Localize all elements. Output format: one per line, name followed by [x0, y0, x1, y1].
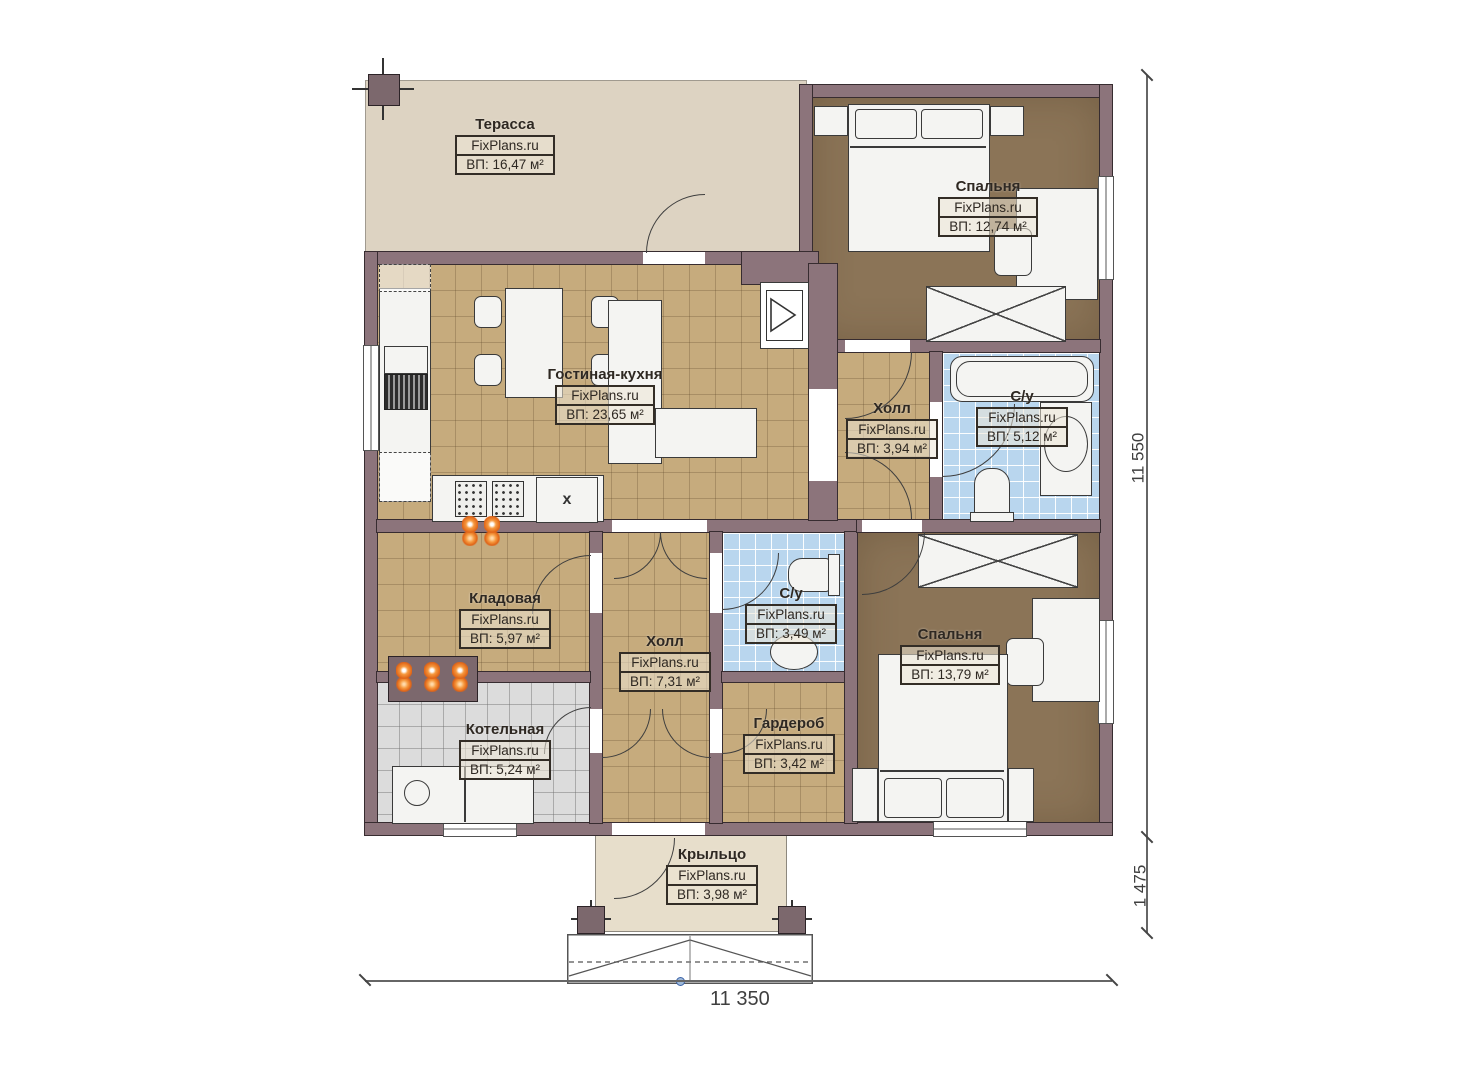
room-area-text: ВП: 3,94 м²: [848, 438, 936, 457]
dimension-line-right: [1146, 75, 1148, 933]
room-area-text: ВП: 5,24 м²: [461, 759, 549, 778]
wall-left: [365, 252, 377, 835]
watermark-text: FixPlans.ru: [902, 647, 998, 664]
wall-top-wing: [800, 85, 1112, 97]
heater-icon-2: [424, 662, 440, 692]
watermark-text: FixPlans.ru: [461, 742, 549, 759]
room-area-text: ВП: 3,42 м²: [745, 753, 833, 772]
vent-shaft-triangle-icon: [766, 290, 803, 341]
watermark-text: FixPlans.ru: [978, 409, 1066, 426]
pillow-icon-2: [921, 109, 983, 139]
hall-lower-top-opening: [612, 520, 707, 532]
room-title: Холл: [873, 400, 911, 417]
room-title: С/у: [779, 585, 802, 602]
watermark-text: FixPlans.ru: [461, 611, 549, 628]
room-label-hall-upper: Холл FixPlans.ru ВП: 3,94 м²: [817, 400, 967, 459]
watermark-text: FixPlans.ru: [745, 736, 833, 753]
bedroom-bottom-window-2: [933, 821, 1027, 837]
stove-burner-icon-2: [492, 481, 524, 517]
stove-burner-icon-1: [455, 481, 487, 517]
kitchen-sink: [384, 346, 428, 374]
wardrobe-unit-top-bedroom: [926, 286, 1066, 342]
nightstand-left: [814, 106, 848, 136]
floor-plan: x: [0, 0, 1473, 1080]
room-label-terrace: Терасса FixPlans.ru ВП: 16,47 м²: [430, 116, 580, 175]
storage-door-opening: [590, 553, 602, 613]
porch-door-opening: [612, 823, 705, 835]
appliance-x-icon: x: [536, 477, 598, 523]
room-title: Спальня: [956, 178, 1021, 195]
room-label-box: FixPlans.ru ВП: 3,98 м²: [666, 865, 758, 905]
room-label-storage: Кладовая FixPlans.ru ВП: 5,97 м²: [430, 590, 580, 649]
watermark-text: FixPlans.ru: [621, 654, 709, 671]
bedroom-top-door-opening: [845, 340, 910, 352]
radiator-icon-1: [462, 516, 478, 546]
room-area-text: ВП: 13,79 м²: [902, 664, 998, 683]
wall-wing-left: [800, 85, 812, 264]
dimension-right-total: 11 550: [1128, 433, 1148, 484]
blanket-line-bottom: [880, 770, 1004, 772]
dimension-bottom-total: 11 350: [710, 988, 770, 1011]
room-label-bedroom-top: Спальня FixPlans.ru ВП: 12,74 м²: [913, 178, 1063, 237]
dimension-right-porch: 1 475: [1130, 865, 1150, 908]
porch-steps: [567, 934, 813, 984]
nightstand-bottom-left: [852, 768, 878, 822]
cad-grip-dot: [676, 977, 685, 986]
kitchen-window: [363, 345, 379, 451]
dining-chair-1: [474, 296, 502, 328]
porch-column-left: [577, 906, 605, 934]
bedroom-bottom-window: [1098, 620, 1114, 724]
room-title: Терасса: [475, 116, 534, 133]
room-label-box: FixPlans.ru ВП: 3,42 м²: [743, 734, 835, 774]
wardrobe-unit-bottom-bedroom: [918, 534, 1078, 588]
room-label-box: FixPlans.ru ВП: 3,49 м²: [745, 604, 837, 644]
room-label-box: FixPlans.ru ВП: 16,47 м²: [455, 135, 555, 175]
bedroom-bottom-door-opening: [862, 520, 922, 532]
room-label-bedroom-bottom: Спальня FixPlans.ru ВП: 13,79 м²: [875, 626, 1025, 685]
room-label-living-kitchen: Гостиная-кухня FixPlans.ru ВП: 23,65 м²: [530, 366, 680, 425]
room-label-porch: Крыльцо FixPlans.ru ВП: 3,98 м²: [637, 846, 787, 905]
room-title: С/у: [1010, 388, 1033, 405]
radiator-icon-2: [484, 516, 500, 546]
room-label-box: FixPlans.ru ВП: 13,79 м²: [900, 645, 1000, 685]
kitchen-cabinet-dashed-bottom: [379, 452, 431, 502]
room-area-text: ВП: 16,47 м²: [457, 154, 553, 173]
toilet-upper-base: [970, 512, 1014, 522]
room-area-text: ВП: 5,12 м²: [978, 426, 1066, 445]
room-label-box: FixPlans.ru ВП: 5,12 м²: [976, 407, 1068, 447]
room-label-bathroom-lower: С/у FixPlans.ru ВП: 3,49 м²: [716, 585, 866, 644]
room-title: Крыльцо: [678, 846, 746, 863]
wall-bath-wardrobe: [722, 672, 857, 682]
wall-shaft-patch: [742, 252, 818, 284]
room-label-bathroom-upper: С/у FixPlans.ru ВП: 5,12 м²: [947, 388, 1097, 447]
pillow-icon-4: [946, 778, 1004, 818]
room-title: Гардероб: [754, 715, 825, 732]
room-area-text: ВП: 5,97 м²: [461, 628, 549, 647]
terrace-column: [368, 74, 400, 106]
room-label-box: FixPlans.ru ВП: 5,24 м²: [459, 740, 551, 780]
watermark-text: FixPlans.ru: [457, 137, 553, 154]
room-title: Гостиная-кухня: [548, 366, 663, 383]
boiler-door-opening: [590, 709, 602, 753]
room-area-text: ВП: 23,65 м²: [557, 404, 653, 423]
watermark-text: FixPlans.ru: [668, 867, 756, 884]
watermark-text: FixPlans.ru: [848, 421, 936, 438]
nightstand-bottom-right: [1008, 768, 1034, 822]
nightstand-right: [990, 106, 1024, 136]
room-area-text: ВП: 3,98 м²: [668, 884, 756, 903]
pillow-icon-1: [855, 109, 917, 139]
room-title: Холл: [646, 633, 684, 650]
room-area-text: ВП: 12,74 м²: [940, 216, 1036, 235]
heater-icon-1: [396, 662, 412, 692]
room-area-text: ВП: 7,31 м²: [621, 671, 709, 690]
blanket-line: [850, 146, 986, 148]
room-label-box: FixPlans.ru ВП: 12,74 м²: [938, 197, 1038, 237]
room-label-box: FixPlans.ru ВП: 7,31 м²: [619, 652, 711, 692]
terrace-door-opening: [643, 252, 705, 264]
kitchen-cabinet-dashed-top: [379, 264, 431, 292]
room-title: Спальня: [918, 626, 983, 643]
watermark-text: FixPlans.ru: [940, 199, 1036, 216]
watermark-text: FixPlans.ru: [747, 606, 835, 623]
room-label-boiler: Котельная FixPlans.ru ВП: 5,24 м²: [430, 721, 580, 780]
room-title: Котельная: [466, 721, 545, 738]
room-label-box: FixPlans.ru ВП: 23,65 м²: [555, 385, 655, 425]
porch-column-right: [778, 906, 806, 934]
room-label-box: FixPlans.ru ВП: 3,94 м²: [846, 419, 938, 459]
dimension-line-bottom: [365, 980, 1112, 982]
room-title: Кладовая: [469, 590, 541, 607]
heater-icon-3: [452, 662, 468, 692]
dining-chair-2: [474, 354, 502, 386]
pillow-icon-3: [884, 778, 942, 818]
bedroom-top-window: [1098, 176, 1114, 280]
room-label-box: FixPlans.ru ВП: 5,97 м²: [459, 609, 551, 649]
watermark-text: FixPlans.ru: [557, 387, 653, 404]
room-area-text: ВП: 3,49 м²: [747, 623, 835, 642]
kitchen-sink-grill-icon: [384, 374, 428, 410]
toilet-upper-bowl-icon: [974, 468, 1010, 516]
room-label-wardrobe: Гардероб FixPlans.ru ВП: 3,42 м²: [714, 715, 864, 774]
boiler-circle-icon: [404, 780, 430, 806]
